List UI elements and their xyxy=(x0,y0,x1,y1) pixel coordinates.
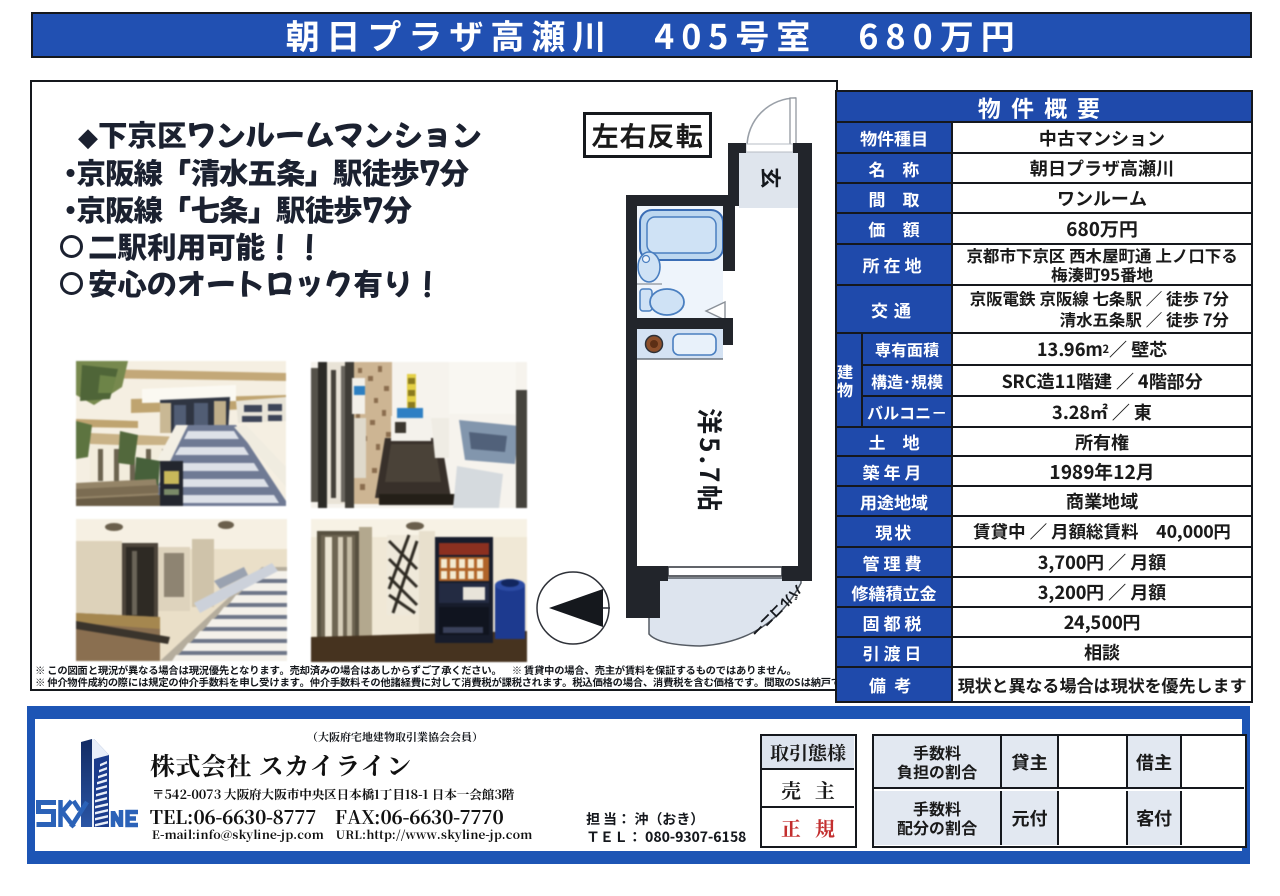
svg-text:玄: 玄 xyxy=(756,168,786,189)
svg-text:洋5.7帖: 洋5.7帖 xyxy=(692,408,729,514)
